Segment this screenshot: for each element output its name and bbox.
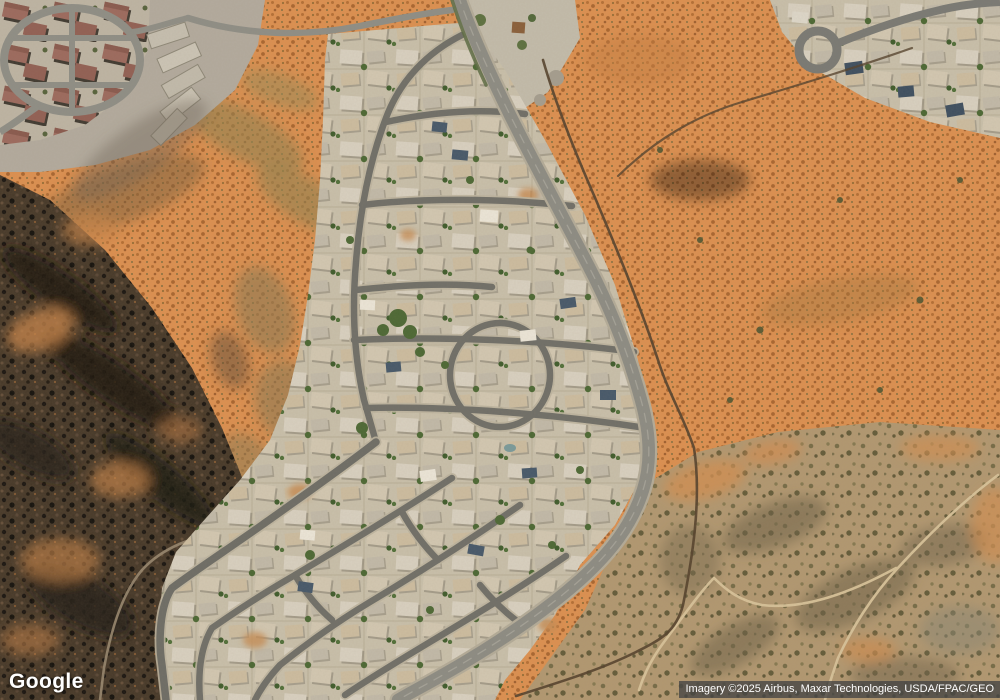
map-viewport[interactable]: Google Imagery ©2025 Airbus, Maxar Techn… <box>0 0 1000 700</box>
attribution-bar: Imagery ©2025 Airbus, Maxar Technologies… <box>679 681 1000 698</box>
grain-overlay <box>0 0 1000 700</box>
google-logo[interactable]: Google <box>9 670 84 694</box>
attribution-text: Imagery ©2025 Airbus, Maxar Technologies… <box>686 683 995 695</box>
satellite-imagery <box>0 0 1000 700</box>
